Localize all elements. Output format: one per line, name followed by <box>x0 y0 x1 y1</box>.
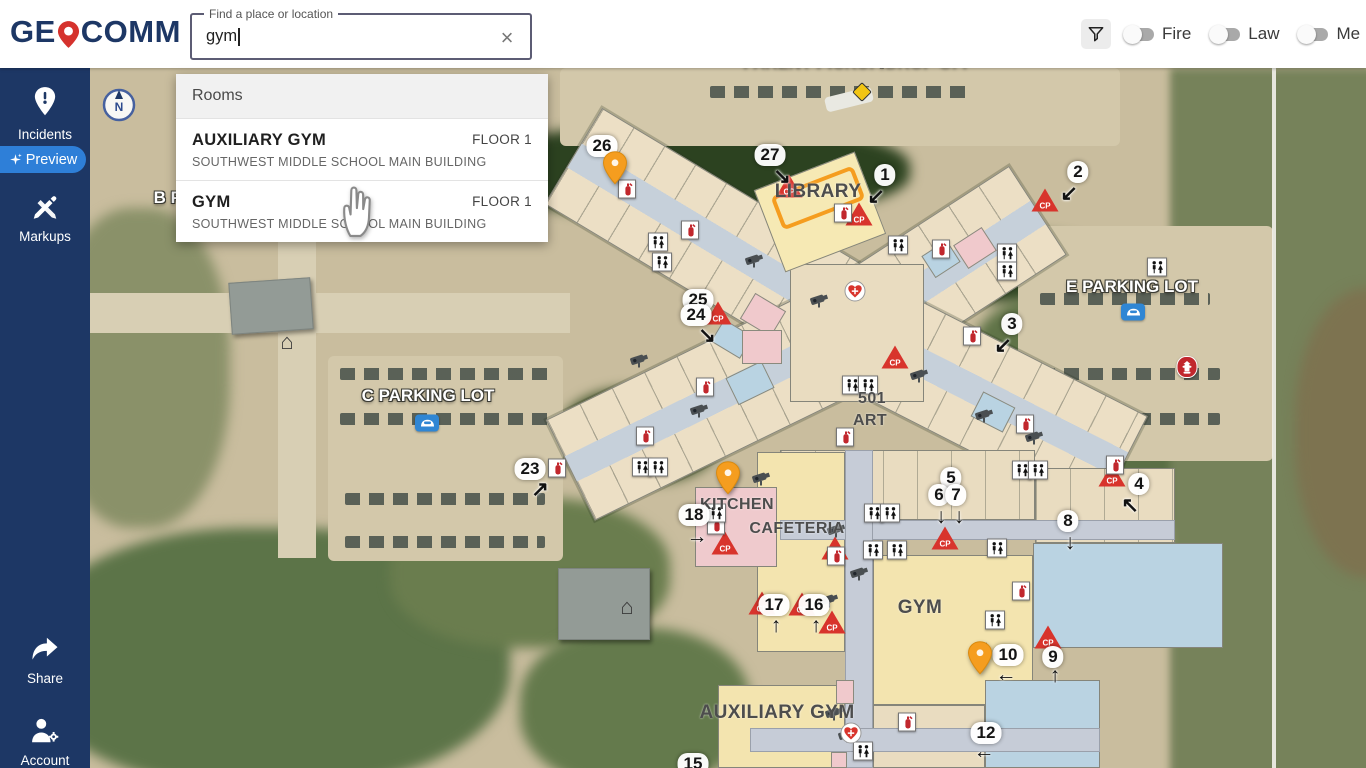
exit-arrow: ↙ <box>867 187 885 207</box>
security-camera-icon <box>744 252 767 269</box>
geocomm-logo: GE COMM <box>10 14 181 50</box>
result-building: SOUTHWEST MIDDLE SCHOOL MAIN BUILDING <box>192 155 532 169</box>
exit-arrow: → <box>687 527 708 547</box>
sidebar-item-incidents[interactable]: Incidents <box>0 86 90 142</box>
security-camera-icon <box>629 352 652 369</box>
exit-arrow: ↓ <box>954 507 965 527</box>
exit-arrow: ↑ <box>771 616 782 636</box>
fire-hydrant-icon <box>1177 356 1198 378</box>
security-camera-icon <box>909 367 932 384</box>
command-post-icon: CP <box>932 527 959 550</box>
aed-heart-icon <box>845 281 866 302</box>
toggle-law[interactable]: Law <box>1213 24 1279 44</box>
exit-number-badge: 18 <box>679 504 710 526</box>
sidebar-item-markups[interactable]: Markups <box>0 190 90 244</box>
command-post-icon: CP <box>1032 189 1059 212</box>
exit-arrow: ↑ <box>1050 666 1061 686</box>
exit-number-badge: 17 <box>759 594 790 616</box>
preview-label: Preview <box>26 152 78 168</box>
parking-car-icon <box>1121 304 1145 321</box>
aed-heart-icon <box>841 723 862 744</box>
map-label: E PARKING LOT <box>1066 277 1198 297</box>
caution-sign-icon <box>855 85 869 99</box>
parked-cars <box>345 493 545 505</box>
map-pin-icon[interactable] <box>715 461 741 495</box>
fire-extinguisher-icon <box>827 547 845 566</box>
markups-pens-icon <box>30 190 60 220</box>
fire-extinguisher-icon <box>836 428 854 447</box>
map-label: GYM <box>898 597 942 619</box>
map-pin-icon[interactable] <box>602 151 628 185</box>
result-floor: FLOOR 1 <box>472 194 532 209</box>
restroom-icon <box>997 262 1017 281</box>
security-camera-icon <box>1024 429 1047 446</box>
sidebar-item-preview[interactable]: Preview <box>0 146 86 173</box>
exit-number-badge: 4 <box>1128 473 1149 495</box>
medical-switch[interactable] <box>1301 28 1328 41</box>
exit-number-badge: 1 <box>874 164 895 186</box>
restroom-icon <box>648 233 668 252</box>
exit-number-badge: 27 <box>755 144 786 166</box>
hand-cursor-icon <box>336 182 382 245</box>
exit-arrow: ↙ <box>994 336 1012 356</box>
medical-label: Me <box>1336 24 1360 44</box>
logo-pin-icon <box>57 20 80 49</box>
fire-extinguisher-icon <box>1012 582 1030 601</box>
search-results-dropdown: Rooms AUXILIARY GYM SOUTHWEST MIDDLE SCH… <box>176 74 548 242</box>
map-label: ART <box>853 412 887 430</box>
outbuilding <box>558 568 650 640</box>
corridor <box>750 728 1100 752</box>
parked-cars <box>340 368 550 380</box>
exit-arrow: ↘ <box>773 167 791 187</box>
exit-arrow: ↑ <box>811 616 822 636</box>
fire-extinguisher-icon <box>636 427 654 446</box>
search-label: Find a place or location <box>204 7 338 21</box>
exit-number-badge: 7 <box>945 484 966 506</box>
restroom-icon <box>997 244 1017 263</box>
layer-filters: Fire Law Me <box>1081 0 1366 68</box>
toggle-fire[interactable]: Fire <box>1127 24 1191 44</box>
map-label: AUXILIARY GYM <box>699 702 854 724</box>
room-pink <box>831 752 847 768</box>
map-label: CAFETERIA <box>749 520 844 538</box>
exit-arrow: ← <box>974 742 995 762</box>
clear-search-icon[interactable]: × <box>494 26 520 52</box>
compass-north-icon[interactable]: N <box>98 84 140 131</box>
search-input[interactable]: gym <box>206 27 240 46</box>
house-icon: ⌂ <box>280 332 293 352</box>
room-pink <box>742 330 782 364</box>
share-label: Share <box>0 671 90 686</box>
incidents-label: Incidents <box>0 127 90 142</box>
restroom-icon <box>880 504 900 523</box>
funnel-icon <box>1086 24 1106 44</box>
map-label: C PARKING LOT <box>362 386 495 406</box>
account-label: Account <box>0 753 90 768</box>
sidebar-item-account[interactable]: Account <box>0 716 90 768</box>
result-item-auxiliary-gym[interactable]: AUXILIARY GYM SOUTHWEST MIDDLE SCHOOL MA… <box>176 118 548 180</box>
fire-extinguisher-icon <box>681 221 699 240</box>
exit-arrow: ↗ <box>531 480 549 500</box>
map-label: KITCHEN <box>700 496 774 514</box>
outbuilding <box>228 277 313 335</box>
restroom-icon <box>987 539 1007 558</box>
law-switch[interactable] <box>1213 28 1240 41</box>
security-camera-icon <box>689 402 712 419</box>
search-box[interactable]: Find a place or location gym × <box>190 13 532 60</box>
security-camera-icon <box>751 470 774 487</box>
exit-arrow: ↓ <box>936 507 947 527</box>
sidebar: Incidents Preview Markups Share <box>0 68 90 768</box>
parking-car-icon <box>415 415 439 432</box>
map-pin-icon[interactable] <box>967 641 993 675</box>
restroom-icon <box>1147 258 1167 277</box>
restroom-icon <box>985 611 1005 630</box>
fire-extinguisher-icon <box>932 240 950 259</box>
exit-number-badge: 23 <box>515 458 546 480</box>
exit-number-badge: 8 <box>1057 510 1078 532</box>
restroom-icon <box>652 253 672 272</box>
result-floor: FLOOR 1 <box>472 132 532 147</box>
sidebar-item-share[interactable]: Share <box>0 636 90 686</box>
road-line <box>1272 68 1276 768</box>
share-arrow-icon <box>30 636 60 662</box>
security-camera-icon <box>849 565 872 582</box>
aux-gym-block <box>718 685 845 768</box>
fire-extinguisher-icon <box>963 327 981 346</box>
fire-label: Fire <box>1162 24 1191 44</box>
account-person-gear-icon <box>29 716 61 744</box>
security-camera-icon <box>974 407 997 424</box>
fire-switch[interactable] <box>1127 28 1154 41</box>
restroom-icon <box>648 458 668 477</box>
exit-arrow: ↘ <box>698 326 716 346</box>
fire-extinguisher-icon <box>1106 456 1124 475</box>
exit-arrow: ↙ <box>1060 184 1078 204</box>
parked-cars <box>345 536 545 548</box>
command-post-icon: CP <box>1035 626 1062 649</box>
exit-number-badge: 3 <box>1001 313 1022 335</box>
restroom-icon <box>863 541 883 560</box>
road <box>90 293 570 333</box>
exit-arrow: ↓ <box>1065 533 1076 553</box>
results-section-header: Rooms <box>176 74 548 118</box>
command-post-icon: CP <box>882 346 909 369</box>
grass-patch <box>520 628 750 768</box>
markups-label: Markups <box>0 229 90 244</box>
locker-block <box>1033 543 1223 648</box>
restroom-icon <box>888 236 908 255</box>
map-label: 501 <box>858 390 886 408</box>
command-post-icon: CP <box>712 532 739 555</box>
fire-extinguisher-icon <box>548 459 566 478</box>
exit-number-badge: 16 <box>799 594 830 616</box>
exit-number-badge: 24 <box>681 304 712 326</box>
blue-block <box>985 680 1100 768</box>
app-header: GE COMM Find a place or location gym × F… <box>0 0 1366 68</box>
house-icon: ⌂ <box>620 597 633 617</box>
restroom-icon <box>887 541 907 560</box>
parked-cars <box>340 413 550 425</box>
exit-arrow: ← <box>996 665 1017 685</box>
fire-extinguisher-icon <box>898 713 916 732</box>
filter-button[interactable] <box>1081 19 1111 49</box>
exit-number-badge: 15 <box>678 753 709 768</box>
security-camera-icon <box>809 292 832 309</box>
grass-patch <box>90 208 230 528</box>
restroom-icon <box>1028 461 1048 480</box>
fire-extinguisher-icon <box>834 204 852 223</box>
logo-text-post: COMM <box>81 14 181 50</box>
exit-arrow: ↖ <box>1121 496 1139 516</box>
law-label: Law <box>1248 24 1279 44</box>
exit-number-badge: 2 <box>1067 161 1088 183</box>
svg-text:N: N <box>115 100 124 114</box>
logo-text-pre: GE <box>10 14 56 50</box>
map-label: PARENT PICKUP/DROP OFF <box>743 68 973 72</box>
incident-pin-icon <box>31 86 59 118</box>
room-pink <box>836 680 854 704</box>
sparkle-icon <box>9 153 22 166</box>
toggle-medical[interactable]: Me <box>1301 24 1360 44</box>
restroom-icon <box>853 742 873 761</box>
fire-extinguisher-icon <box>696 378 714 397</box>
text-caret <box>238 28 240 46</box>
